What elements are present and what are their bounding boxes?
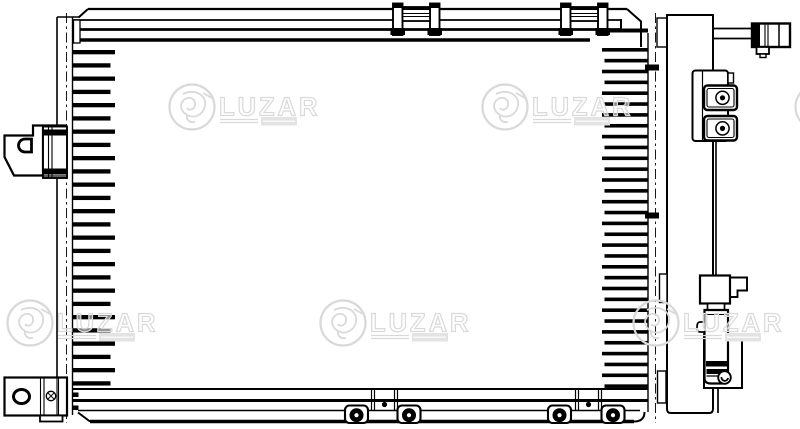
watermark-dragon-body: [334, 308, 356, 333]
right-plate-top-notch: [657, 18, 667, 47]
tube-bar-left: [73, 169, 111, 173]
watermark-dragon-curl: [19, 314, 33, 331]
watermark-dragon-curl: [181, 98, 195, 115]
tube-bar-right: [605, 167, 649, 171]
top-bracket-block-band: [571, 7, 599, 10]
top-bracket-post-foot: [559, 28, 574, 35]
tube-bar-left: [73, 130, 116, 134]
bottom-rail-left-chamfer: [78, 413, 90, 422]
tube-bar-right: [605, 276, 649, 280]
left-plate-top-notch: [74, 20, 81, 43]
tube-bar-right: [605, 319, 649, 323]
tube-bar-left: [73, 249, 111, 253]
tube-bar-right: [605, 59, 649, 63]
tube-bar-right: [605, 254, 649, 258]
top-bracket-post-cap: [561, 4, 571, 9]
drier-port-block: [700, 276, 730, 304]
tube-bar-right: [602, 178, 648, 182]
top-bracket-block-band: [403, 7, 431, 10]
tube-stub: [73, 406, 79, 411]
left-top-bracket-band-bottom: [43, 169, 67, 175]
left-top-bracket-band-top: [43, 130, 67, 136]
watermark-dragon-body: [21, 308, 43, 333]
watermark-dragon-curl: [332, 314, 346, 331]
tube-bar-left: [73, 77, 116, 81]
tube-stub: [73, 393, 79, 398]
tube-bar-left: [73, 63, 111, 67]
left-side-plate: [57, 13, 80, 423]
top-bracket-post-foot: [391, 28, 406, 35]
tube-bar-right: [602, 265, 648, 269]
right-side-plate: [645, 13, 667, 423]
tube-bar-right: [602, 157, 648, 161]
right-plate-tab-upper: [645, 65, 659, 71]
watermark-tile: LUZAR: [796, 85, 800, 130]
tube-bar-right: [605, 211, 649, 215]
terminal-hole-center: [720, 95, 725, 100]
tube-bar-right: [605, 124, 649, 128]
top-rail: [72, 9, 641, 47]
tube-bar-left: [73, 355, 111, 359]
watermark-tile: LUZAR: [8, 301, 159, 346]
tube-bar-left: [73, 209, 116, 213]
tube-bar-left: [73, 222, 111, 226]
bottom-rail-right-step: [634, 412, 645, 422]
left-bottom-bracket-foot: [40, 416, 63, 422]
terminal-bracket: [693, 71, 738, 142]
left-top-bracket: [5, 126, 68, 179]
tube-bar-right: [602, 374, 648, 378]
drier-sight-glass: [718, 371, 731, 384]
core-tubes-left: [73, 50, 116, 410]
top-bracket-post-cap: [430, 4, 440, 9]
tube-bar-right: [605, 384, 649, 388]
tube-bar-right: [602, 308, 648, 312]
left-bottom-bracket: [5, 378, 68, 422]
foot-screw-center: [611, 413, 615, 417]
terminal-hole-center: [720, 126, 725, 131]
tube-bar-left: [73, 236, 116, 240]
tube-bar-left: [73, 50, 116, 54]
foot-center-dot: [382, 402, 387, 407]
inlet-fitting-tab-step: [760, 54, 766, 58]
tube-bar-left: [73, 156, 116, 160]
terminal-bracket-step-top: [728, 73, 734, 83]
condenser-technical-drawing: LUZARLUZARLUZARLUZARLUZARLUZAR: [0, 0, 800, 429]
terminal-pad-lower: [704, 116, 737, 141]
tube-bar-right: [602, 48, 648, 52]
bottom-mounting-feet: [345, 389, 625, 423]
tube-bar-left: [73, 302, 111, 306]
right-plate-slot-upper: [660, 274, 668, 303]
left-bottom-bracket-slot: [14, 390, 30, 404]
tube-bar-right: [605, 232, 649, 236]
tube-bar-left: [73, 368, 116, 372]
tube-bar-right: [602, 135, 648, 139]
top-bracket-post-cap: [598, 4, 608, 9]
tube-bar-right: [602, 287, 648, 291]
tube-bar-right: [605, 298, 649, 302]
watermark-dragon-curl: [494, 98, 508, 115]
inlet-fitting-cap: [752, 24, 760, 48]
tube-bar-left: [73, 116, 111, 120]
condenser-drawing-canvas: LUZARLUZARLUZARLUZARLUZARLUZAR: [0, 0, 800, 429]
foot-center-dot: [586, 402, 591, 407]
inlet-fitting-tab: [757, 47, 770, 54]
foot-screw-center: [557, 413, 561, 417]
core-tubes-right: [602, 29, 648, 388]
tube-bar-right: [602, 222, 648, 226]
tube-bar-left: [73, 183, 116, 187]
inlet-pipe-fitting: [713, 24, 790, 58]
tube-bar-left: [73, 143, 111, 147]
tube-bar-right: [602, 200, 648, 204]
tube-bar-left: [73, 381, 111, 385]
top-rail-right-chamfer: [627, 9, 641, 47]
drier-port-step: [730, 278, 747, 298]
watermark-dragon-body: [183, 92, 205, 117]
tube-bar-right: [605, 363, 649, 367]
watermark-dragon-body: [647, 308, 669, 333]
tube-bar-right: [605, 146, 649, 150]
tube-bar-right: [602, 352, 648, 356]
terminal-pad-upper: [704, 86, 737, 111]
top-bracket-post-foot: [596, 28, 611, 35]
watermark-dragon-circle: [796, 85, 800, 130]
left-top-bracket-slot: [19, 139, 32, 152]
tube-bar-left: [73, 103, 116, 107]
tube-bar-right: [602, 70, 648, 74]
foot-screw-center: [407, 413, 411, 417]
tube-bar-left: [73, 342, 116, 346]
tube-bar-left: [73, 90, 111, 94]
drier-rib1: [706, 361, 728, 367]
tube-bar-right: [602, 243, 648, 247]
tube-bar-right: [602, 330, 648, 334]
tube-bar-left: [73, 196, 111, 200]
tube-bar-right: [605, 81, 649, 85]
tube-bar-left: [73, 275, 111, 279]
watermark-tile: LUZAR: [321, 301, 472, 346]
watermark-dragon-body: [496, 92, 518, 117]
tube-bar-right: [605, 189, 649, 193]
tube-bar-left: [73, 289, 116, 293]
foot-screw-center: [354, 413, 358, 417]
watermark-tile: LUZAR: [170, 85, 321, 130]
top-bracket-post-cap: [393, 4, 403, 9]
watermark-tile: LUZAR: [483, 85, 634, 130]
top-bracket-post-foot: [428, 28, 443, 35]
tube-bar-left: [73, 262, 116, 266]
right-plate-slot-lower: [658, 371, 667, 403]
